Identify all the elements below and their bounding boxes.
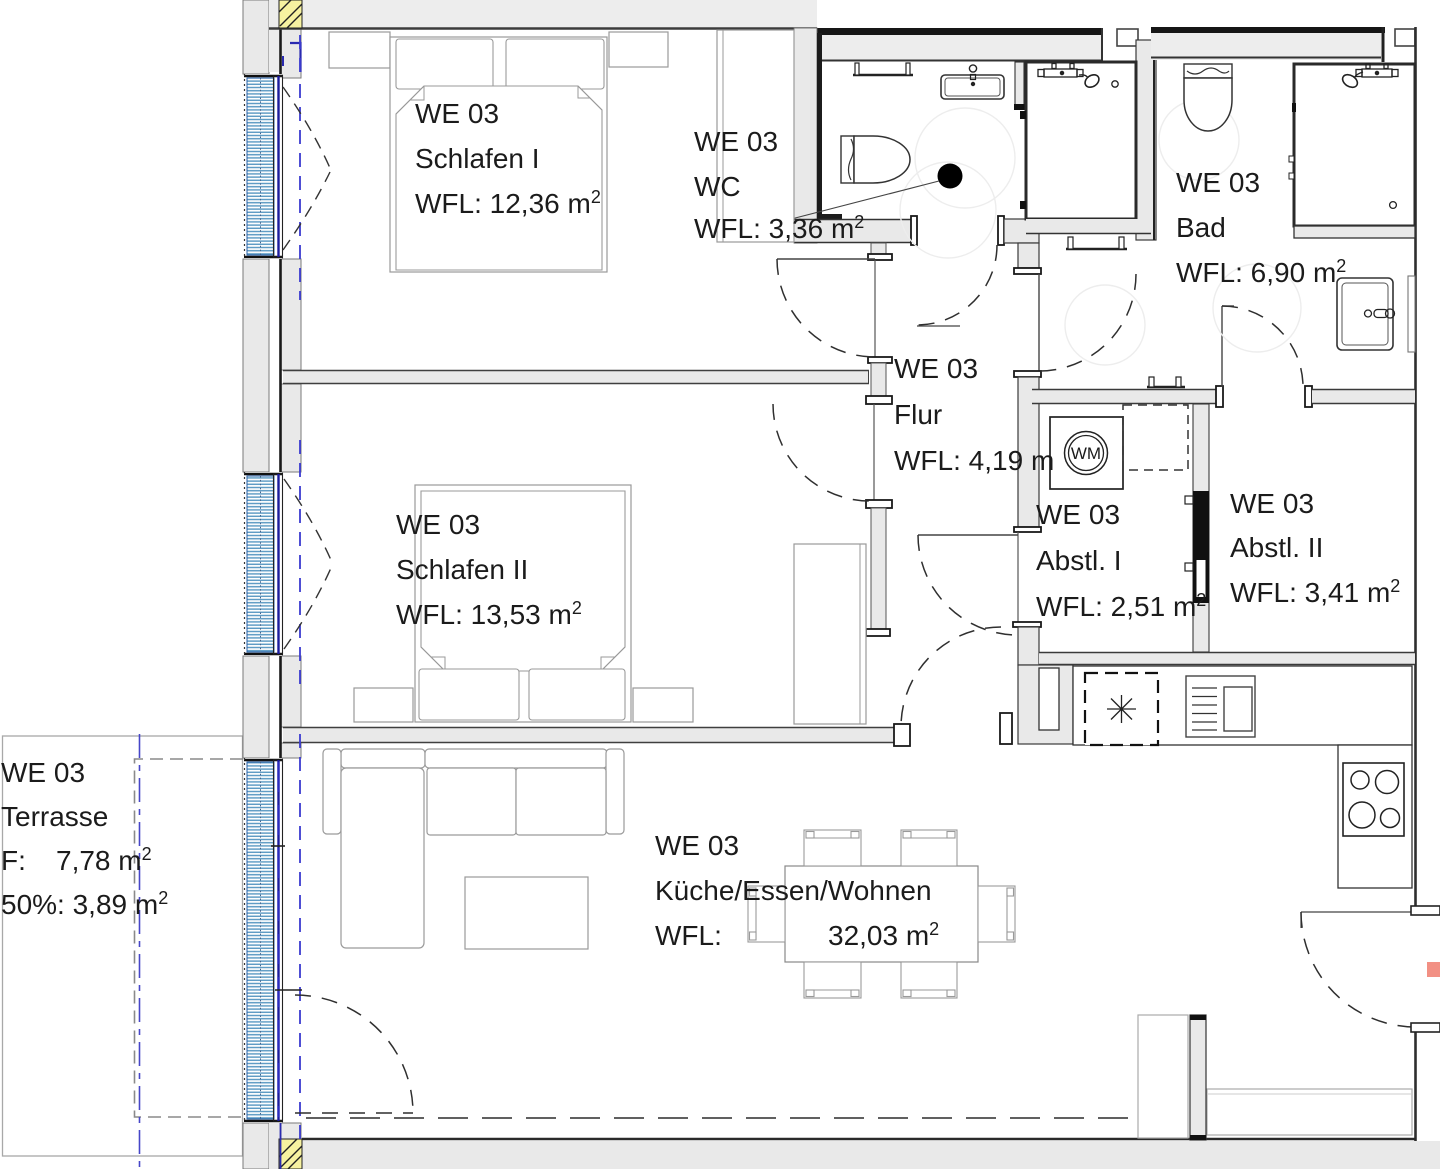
svg-text:WE 03: WE 03	[396, 509, 480, 540]
svg-text:WFL:: WFL:	[655, 920, 722, 951]
svg-text:Terrasse: Terrasse	[1, 801, 108, 832]
svg-text:Küche/Essen/Wohnen: Küche/Essen/Wohnen	[655, 875, 932, 906]
svg-text:WFL: 6,90 m2: WFL: 6,90 m2	[1176, 256, 1346, 288]
svg-text:WE 03: WE 03	[894, 353, 978, 384]
svg-text:Schlafen II: Schlafen II	[396, 554, 528, 585]
svg-text:WE 03: WE 03	[415, 98, 499, 129]
svg-text:WE 03: WE 03	[1, 757, 85, 788]
svg-text:Abstl. II: Abstl. II	[1230, 532, 1323, 563]
svg-text:Flur: Flur	[894, 399, 942, 430]
svg-text:Bad: Bad	[1176, 212, 1226, 243]
svg-text:WE 03: WE 03	[1230, 488, 1314, 519]
svg-text:WFL: 2,51 m2: WFL: 2,51 m2	[1036, 590, 1206, 622]
svg-text:WFL: 3,36 m2: WFL: 3,36 m2	[694, 212, 864, 244]
svg-text:WC: WC	[694, 171, 741, 202]
svg-text:50%: 3,89 m2: 50%: 3,89 m2	[1, 888, 168, 920]
svg-text:WFL: 12,36 m2: WFL: 12,36 m2	[415, 187, 601, 219]
svg-text:WFL: 3,41 m2: WFL: 3,41 m2	[1230, 576, 1400, 608]
svg-text:WE 03: WE 03	[655, 830, 739, 861]
svg-text:F:: F:	[1, 845, 26, 876]
svg-text:32,03 m2: 32,03 m2	[828, 919, 939, 951]
svg-text:WFL: 4,19 m: WFL: 4,19 m	[894, 445, 1054, 476]
svg-text:WE 03: WE 03	[694, 126, 778, 157]
svg-text:WFL: 13,53 m2: WFL: 13,53 m2	[396, 598, 582, 630]
svg-text:WE 03: WE 03	[1036, 499, 1120, 530]
svg-text:Abstl. I: Abstl. I	[1036, 545, 1122, 576]
svg-text:WE 03: WE 03	[1176, 167, 1260, 198]
svg-text:WM: WM	[1071, 444, 1101, 463]
svg-text:7,78 m2: 7,78 m2	[56, 844, 152, 876]
svg-text:Schlafen I: Schlafen I	[415, 143, 540, 174]
